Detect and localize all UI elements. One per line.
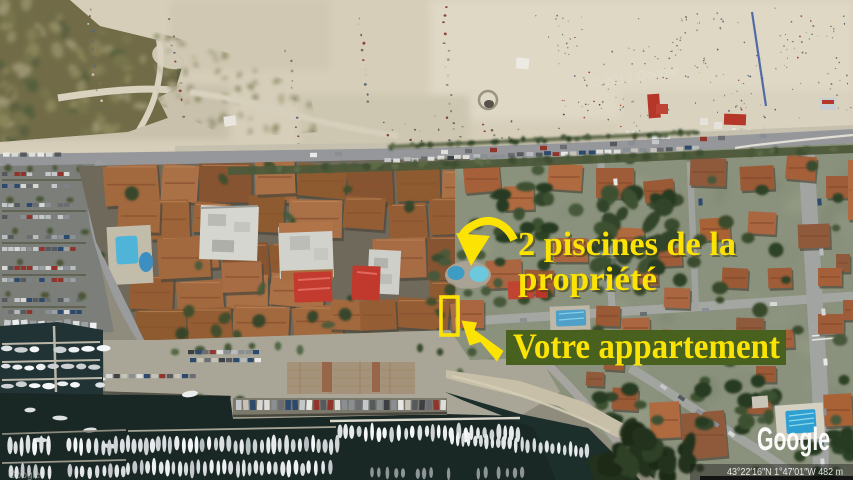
svg-text:Votre appartement: Votre appartement — [513, 326, 780, 366]
svg-text:Google: Google — [8, 470, 41, 480]
svg-text:propriété: propriété — [518, 261, 657, 298]
svg-text:2 piscines de la: 2 piscines de la — [518, 226, 736, 263]
svg-text:43°22′16″N 1°47′01″W 482 m: 43°22′16″N 1°47′01″W 482 m — [727, 467, 843, 478]
svg-text:Google: Google — [757, 421, 830, 457]
